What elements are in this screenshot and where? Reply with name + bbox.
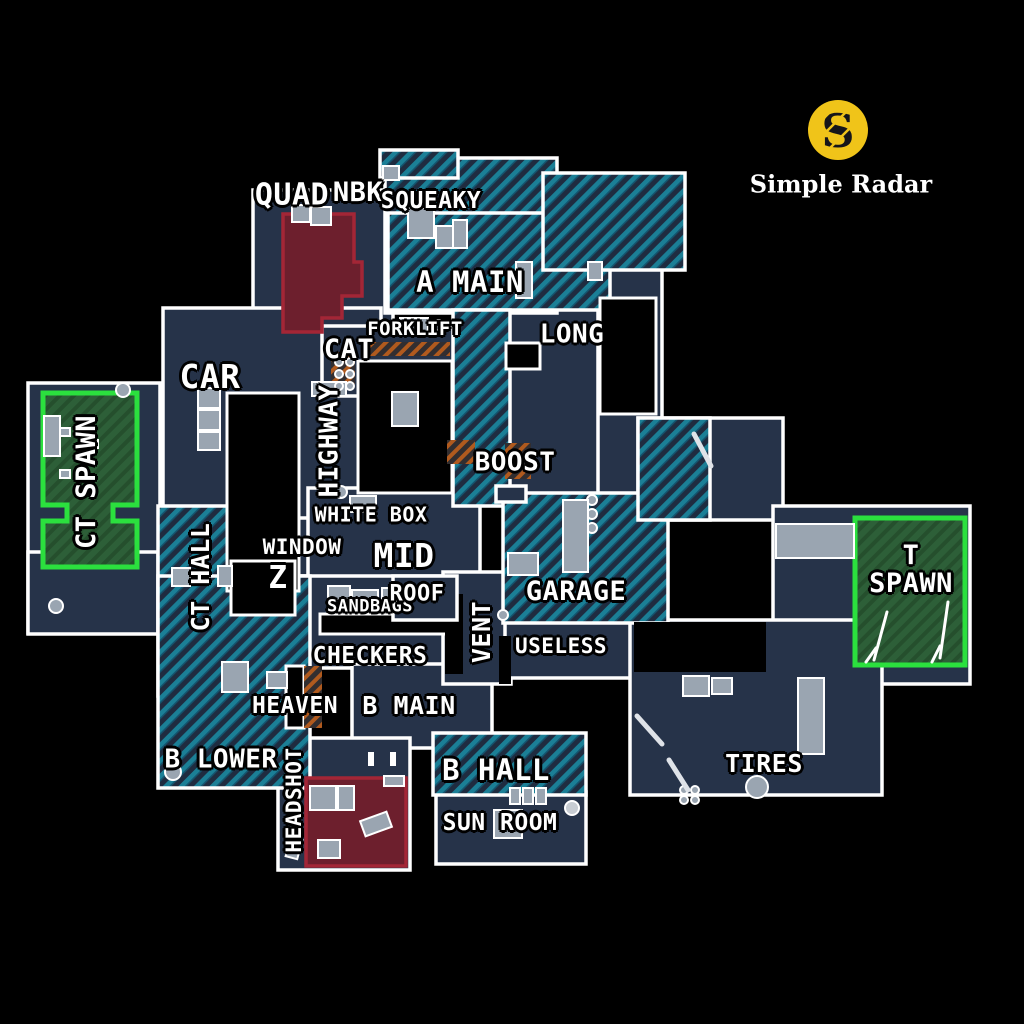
map-label-b-hall: B HALL — [442, 756, 550, 786]
map-label-roof: ROOF — [390, 584, 445, 607]
map-label-ct-spawn: CT SPAWN — [73, 415, 101, 549]
map-label-quad: QUAD — [255, 181, 329, 212]
map-label-headshot: HEADSHOT — [284, 747, 306, 852]
map-label-b-lower: B LOWER — [164, 747, 277, 774]
map-label-useless: USELESS — [515, 636, 607, 658]
map-label-forklift: FORKLIFT — [367, 320, 463, 340]
map-label-mid: MID — [373, 539, 434, 573]
map-label-layer: QUADNBKSQUEAKYA MAINLONGFORKLIFTCATCARHI… — [0, 0, 1024, 1024]
logo-brand-text: Simple Radar — [750, 170, 932, 199]
map-label-b-main: B MAIN — [362, 693, 455, 719]
map-label-cat: CAT — [324, 336, 374, 364]
radar-canvas: S QUADNBKSQUEAKYA MAINLONGFORKLIFTCATCAR… — [0, 0, 1024, 1024]
map-label-nbk: NBK — [333, 179, 383, 207]
map-label-white-box: WHITE BOX — [315, 505, 428, 526]
map-label-squeaky: SQUEAKY — [381, 190, 481, 214]
map-label-sun-room: SUN ROOM — [443, 812, 558, 836]
map-label-z: Z — [268, 563, 287, 595]
map-label-ct-hall: CT HALL — [188, 523, 214, 632]
map-label-heaven: HEAVEN — [252, 695, 338, 719]
map-label-long: LONG — [540, 322, 605, 349]
map-label-car: CAR — [179, 360, 240, 394]
map-label-tires: TIRES — [725, 751, 803, 777]
map-label-boost: BOOST — [475, 450, 556, 477]
map-label-a-main: A MAIN — [416, 268, 524, 298]
map-label-highway: HIGHWAY — [317, 384, 344, 497]
map-label-garage: GARAGE — [526, 578, 627, 606]
map-label-t-spawn: T SPAWN — [869, 542, 953, 598]
map-label-window: WINDOW — [263, 537, 342, 559]
map-label-vent: VENT — [469, 601, 495, 663]
map-label-checkers: CHECKERS — [313, 645, 428, 669]
